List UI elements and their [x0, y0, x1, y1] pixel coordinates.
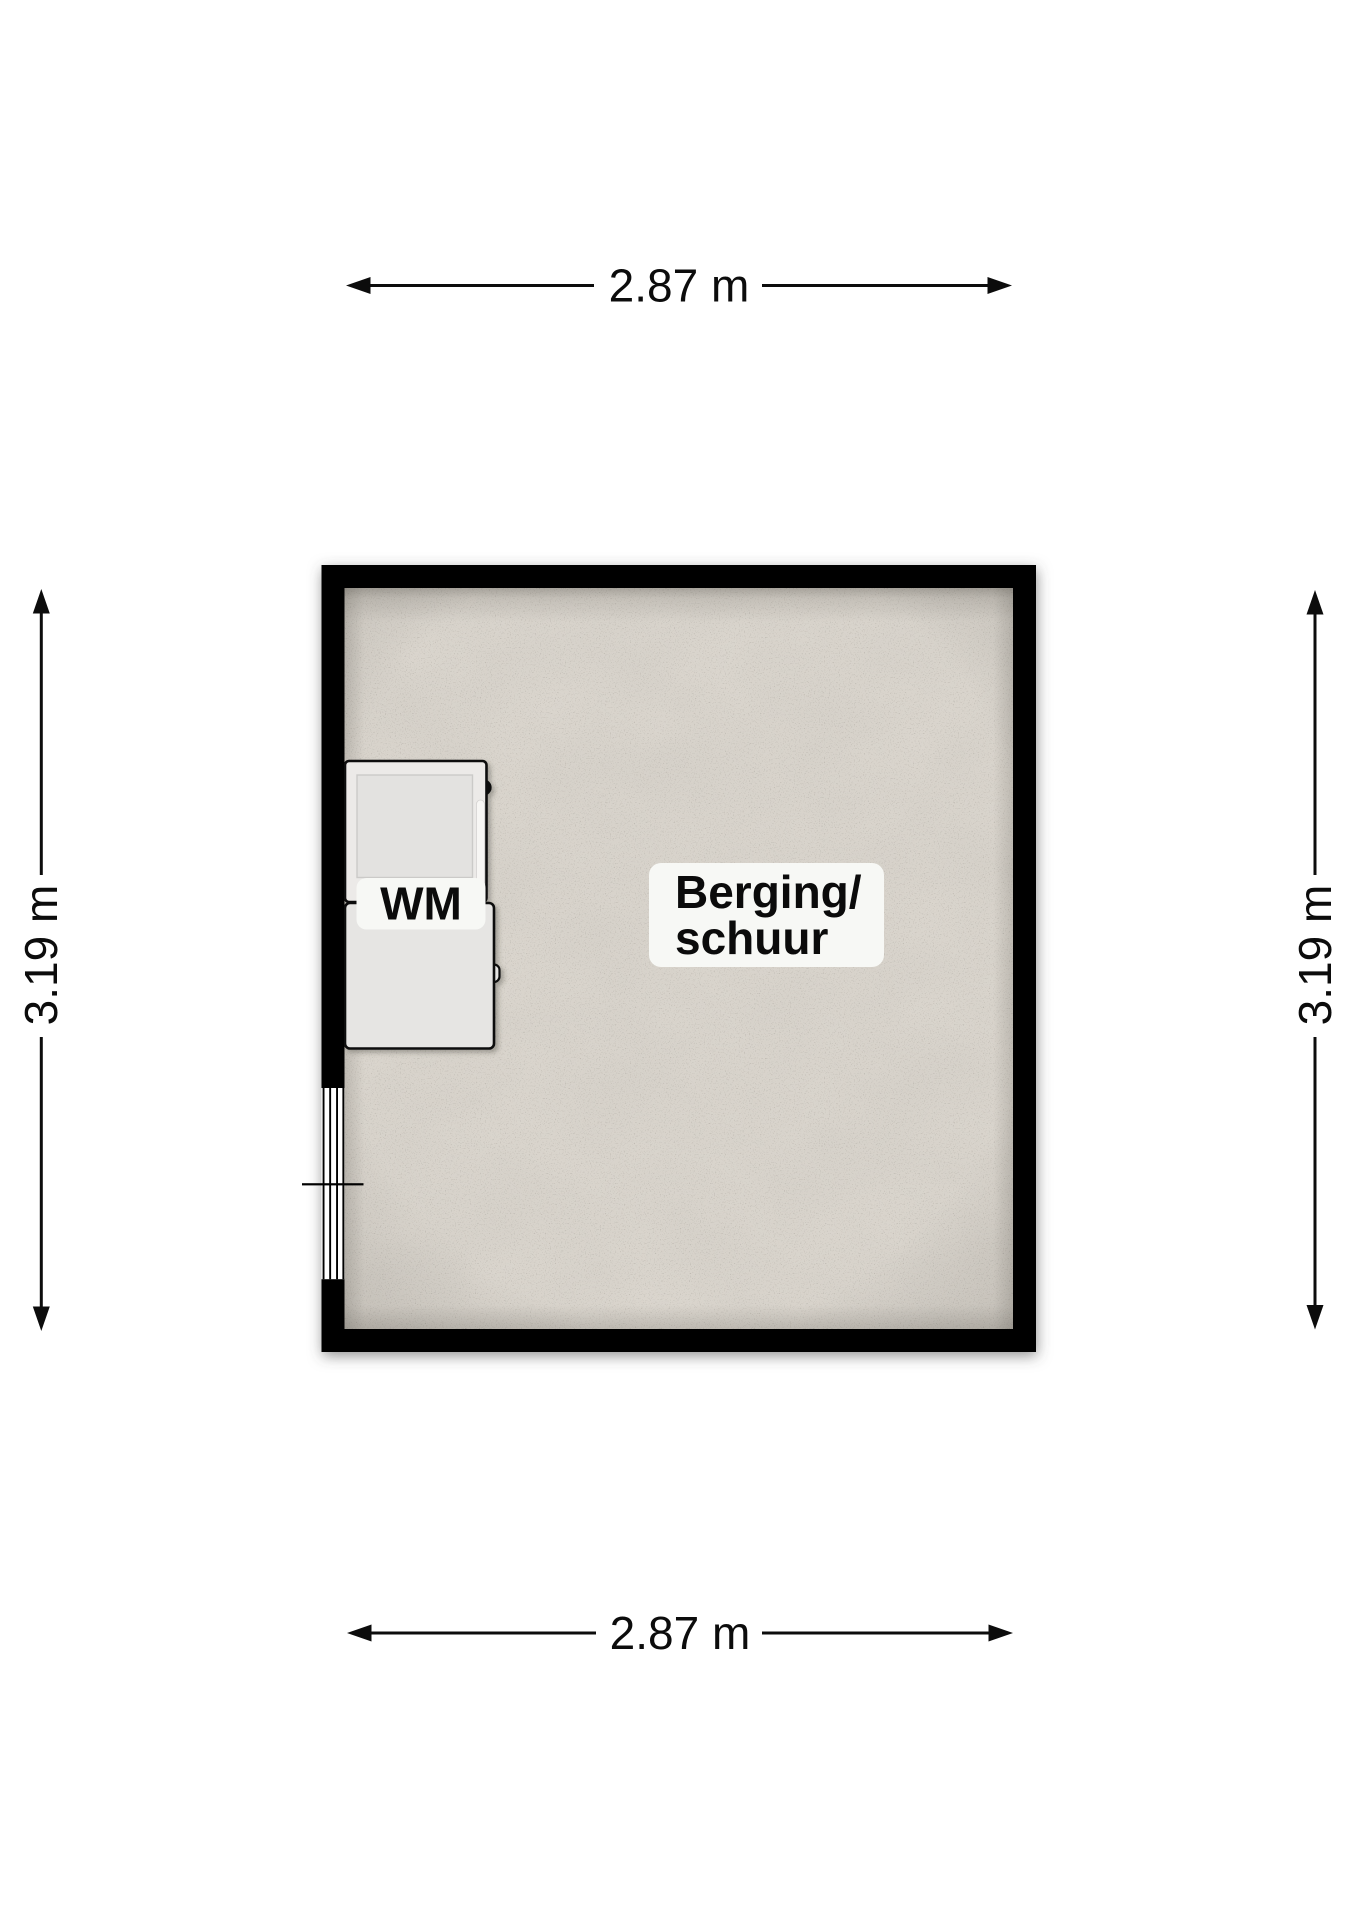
svg-text:3.19 m: 3.19 m — [1289, 885, 1341, 1026]
svg-text:2.87 m: 2.87 m — [610, 1607, 751, 1659]
svg-text:WM: WM — [380, 878, 462, 930]
svg-text:3.19 m: 3.19 m — [15, 885, 67, 1026]
svg-text:Berging/: Berging/ — [675, 866, 862, 918]
svg-text:2.87 m: 2.87 m — [609, 259, 750, 311]
svg-text:schuur: schuur — [675, 912, 828, 964]
